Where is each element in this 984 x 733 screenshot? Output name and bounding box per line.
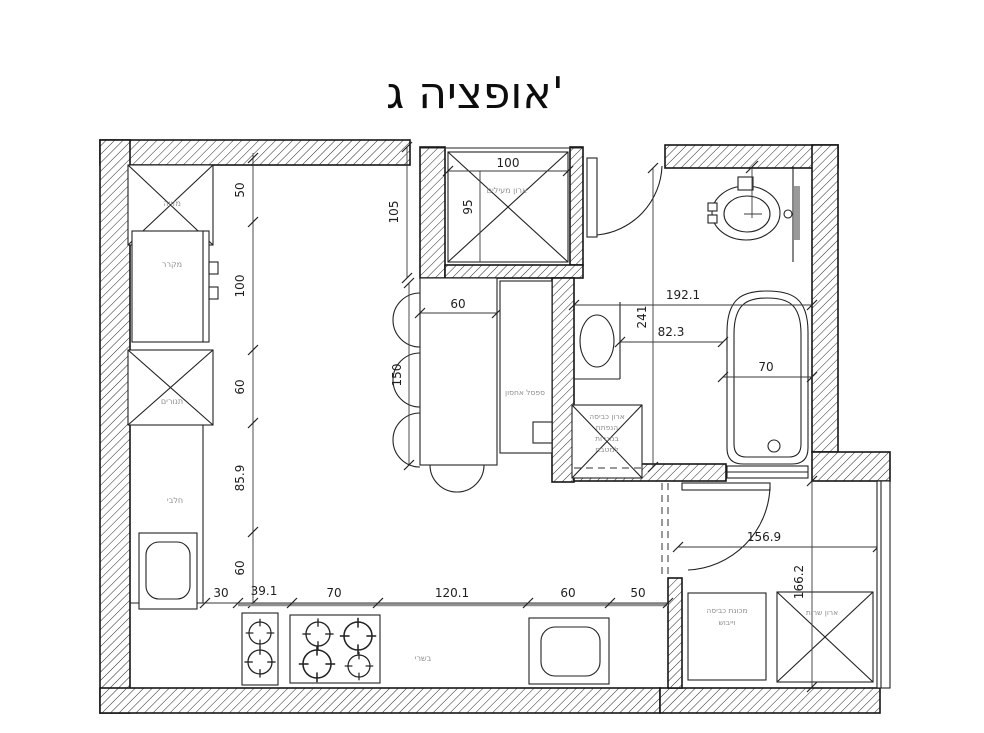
sink-basin — [580, 315, 614, 367]
wall-bottom-right — [660, 688, 880, 713]
bathtub — [727, 291, 808, 478]
ovens-label: תנורים — [161, 397, 183, 406]
dim-closet-95: 95 — [461, 199, 475, 214]
dairy-counter: חלבי — [130, 425, 203, 609]
laundry-door — [682, 483, 770, 570]
wall-bottom — [100, 688, 660, 713]
meat-counter-label: בשרי — [415, 654, 432, 663]
bath-cabinet-label-4: למטבח — [595, 445, 618, 454]
wall-right-step — [812, 452, 890, 481]
cooktop-two-burner — [242, 613, 278, 685]
fridge: מקרר — [132, 231, 218, 342]
dim-bottom-39-1: 39.1 — [251, 584, 278, 598]
stool — [393, 413, 420, 467]
service-closet-label: ארון שרות — [806, 608, 838, 617]
dim-laundry-166-2: 166.2 — [792, 565, 806, 599]
cooktop-four-burner — [290, 615, 380, 683]
pantry-label: מזווה — [163, 199, 181, 208]
bath-cabinet-label-2: הנפתח — [596, 423, 619, 432]
dim-closet-100: 100 — [497, 156, 520, 170]
ovens-cabinet: תנורים — [128, 350, 213, 425]
bottom-dimension-line: 30 39.1 70 120.1 60 50 — [200, 584, 673, 608]
kitchen-sink-left — [139, 533, 197, 609]
wall-closet-right — [570, 147, 583, 265]
wall-closet-bottom — [445, 265, 583, 278]
wall-laundry-stub — [668, 578, 682, 688]
stool — [430, 465, 484, 492]
dim-bath-192-1: 192.1 — [666, 288, 700, 302]
dim-closet-105: 105 — [387, 201, 401, 224]
storage-bench: ספסל אחסון — [500, 281, 552, 453]
wall-closet-left — [420, 147, 445, 278]
dim-left-100: 100 — [233, 275, 247, 298]
wall-left — [100, 140, 130, 713]
washer-label-1: מכונת כביסה — [706, 606, 747, 615]
dim-bottom-30: 30 — [213, 586, 228, 600]
bath-cabinet-label-1: ארון כביסה — [589, 412, 624, 421]
dim-left-60a: 60 — [233, 379, 247, 394]
coat-closet-label: ארון מעילים — [487, 186, 528, 195]
door-leaf — [587, 158, 597, 237]
left-dimension-line: 50 100 60 85.9 60 — [233, 153, 258, 608]
washer-dryer: מכונת כביסה וייבוש — [688, 593, 766, 680]
dim-tub-70: 70 — [758, 360, 773, 374]
storage-bench-label: ספסל אחסון — [505, 388, 545, 397]
washer-label-2: וייבוש — [718, 618, 735, 627]
door-swing-arc — [688, 487, 770, 570]
bathroom-sink — [574, 302, 620, 379]
stool — [393, 293, 420, 347]
dim-bottom-70: 70 — [326, 586, 341, 600]
dim-bath-241: 241 — [635, 306, 649, 329]
floor-plan-page: אופציה ג' מזווה מקרר תנורים — [0, 0, 984, 733]
toilet-flush — [784, 210, 792, 218]
plan-title: אופציה ג' — [386, 68, 564, 119]
kitchen-sink-bottom — [529, 618, 609, 684]
laundry-window — [877, 481, 890, 688]
fridge-handle — [209, 287, 218, 299]
floor-plan-drawing: אופציה ג' מזווה מקרר תנורים — [0, 0, 984, 733]
fridge-handle — [209, 262, 218, 274]
wall-right — [812, 145, 838, 452]
island: 60 150 — [390, 278, 502, 492]
dim-left-60b: 60 — [233, 560, 247, 575]
dim-bottom-50: 50 — [630, 586, 645, 600]
dim-bottom-60: 60 — [560, 586, 575, 600]
laundry-room: מכונת כביסה וייבוש ארון שרות 156.9 166.2 — [662, 476, 890, 692]
toilet — [708, 161, 800, 262]
toilet-cistern — [794, 186, 800, 240]
door-leaf — [682, 483, 770, 490]
dim-laundry-156-9: 156.9 — [747, 530, 781, 544]
dim-island-150: 150 — [390, 364, 404, 387]
service-closet: ארון שרות — [777, 592, 873, 682]
dim-left-50: 50 — [233, 182, 247, 197]
coat-closet: ארון מעילים 100 95 105 — [387, 142, 583, 283]
dim-bath-82-3: 82.3 — [658, 325, 685, 339]
door-swing-arc — [597, 166, 662, 235]
dim-left-85-9: 85.9 — [233, 465, 247, 492]
dim-island-60: 60 — [450, 297, 465, 311]
fridge-label: מקרר — [162, 260, 182, 269]
dairy-counter-label: חלבי — [167, 496, 183, 505]
dim-bottom-120-1: 120.1 — [435, 586, 469, 600]
bath-cabinet-label-3: במגרות — [595, 434, 619, 443]
wall-top-left — [100, 140, 410, 165]
bath-laundry-cabinet: ארון כביסה הנפתח במגרות למטבח — [572, 405, 642, 478]
